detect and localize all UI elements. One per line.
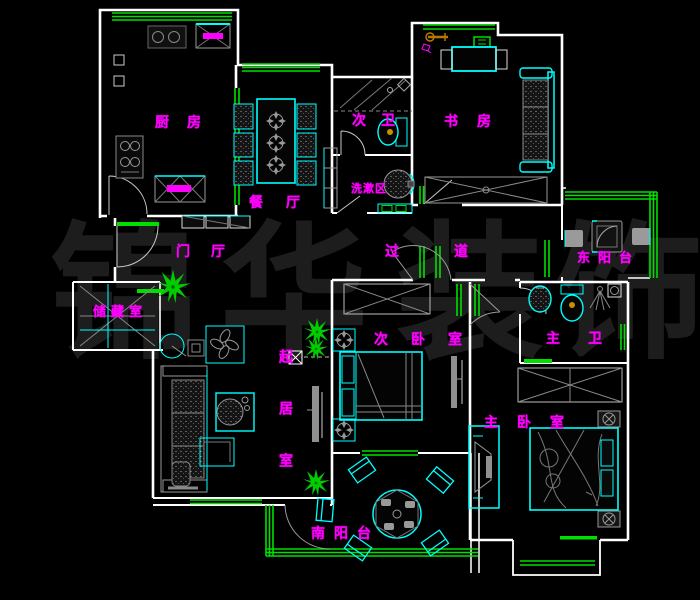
second-bedroom-furniture xyxy=(333,284,462,441)
balcony-door-track xyxy=(545,240,549,277)
wash-cabinet xyxy=(378,204,412,213)
shower-area xyxy=(340,78,406,110)
room-label-study: 书房 xyxy=(444,111,510,131)
study-desk xyxy=(441,47,507,71)
study-window xyxy=(423,25,495,29)
master-bath-fixtures xyxy=(529,284,621,321)
kitchen-sink xyxy=(148,26,186,48)
room-label-master-bath: 主卫 xyxy=(546,328,630,348)
plant-icon xyxy=(304,318,331,345)
south-balcony-furniture xyxy=(316,457,453,561)
room-label-dining: 餐厅 xyxy=(249,192,323,212)
second-bath-door xyxy=(341,131,365,155)
room-label-storage: 储藏室 xyxy=(93,301,147,320)
room-label-foyer: 门厅 xyxy=(176,241,246,261)
armchair xyxy=(206,326,244,363)
floor-drain-icon xyxy=(608,284,621,297)
room-label-master-bedroom: 主卧室 xyxy=(484,412,583,432)
wash-basin-icon xyxy=(384,170,414,198)
study-sofa xyxy=(520,68,554,172)
cabinet-handle xyxy=(203,33,223,39)
desk-tools-icon xyxy=(426,33,448,41)
room-label-living-room: 起居室 xyxy=(276,349,296,505)
kitchen-window xyxy=(112,13,232,20)
mat xyxy=(565,230,583,247)
room-label-wash-area: 洗漱区 xyxy=(351,180,387,196)
entry-door xyxy=(117,226,158,267)
nightstand xyxy=(598,411,620,427)
bed xyxy=(530,428,618,510)
kitchen-lower-cabinet xyxy=(155,176,205,202)
second-bedroom-window xyxy=(362,451,418,455)
cabinet-handle xyxy=(167,185,191,192)
gadget-icon xyxy=(422,44,431,53)
round-table xyxy=(373,490,421,538)
coffee-table xyxy=(216,393,254,431)
bedroom-sill xyxy=(560,536,597,540)
tv-icon xyxy=(451,356,462,408)
plant-icon xyxy=(305,337,328,360)
room-label-kitchen: 厨房 xyxy=(155,112,219,132)
plant-icon xyxy=(157,270,191,304)
nightstand xyxy=(333,329,355,351)
dining-side-cabinet xyxy=(324,148,337,208)
tv-cabinet-icon xyxy=(469,426,499,508)
wardrobe xyxy=(344,284,430,314)
pillow xyxy=(601,440,613,466)
tv-icon xyxy=(307,386,322,442)
pillow xyxy=(601,470,613,496)
room-label-corridor: 过道 xyxy=(385,241,523,261)
floor-plan-drawing xyxy=(0,0,700,600)
floor-plan: 锦 华 装 饰 xyxy=(0,0,700,600)
wardrobe xyxy=(518,368,622,402)
kitchen-door xyxy=(109,176,147,215)
side-table xyxy=(160,334,204,358)
nightstand xyxy=(333,419,355,441)
bath-threshold xyxy=(524,359,552,363)
room-label-second-bedroom: 次卧室 xyxy=(374,329,485,349)
master-bedroom-furniture xyxy=(469,368,622,527)
entry-threshold xyxy=(117,222,159,226)
study-door-jamb xyxy=(420,186,424,204)
stove-icon xyxy=(116,136,143,178)
wash-area-door xyxy=(337,196,360,213)
toilet-icon xyxy=(561,285,583,321)
small-desk xyxy=(200,438,234,466)
bay-window xyxy=(520,561,595,565)
mat xyxy=(632,228,650,245)
room-label-second-bath: 次卫 xyxy=(352,110,410,130)
shower-icon xyxy=(590,287,610,311)
room-label-east-balcony: 东阳台 xyxy=(577,247,640,266)
living-window xyxy=(190,500,262,504)
study-daybed xyxy=(425,177,547,203)
room-label-south-balcony: 南阳台 xyxy=(311,523,380,543)
bed xyxy=(340,352,422,420)
plant-icon xyxy=(303,469,330,496)
basin-icon xyxy=(529,286,551,312)
nightstand xyxy=(598,511,620,527)
